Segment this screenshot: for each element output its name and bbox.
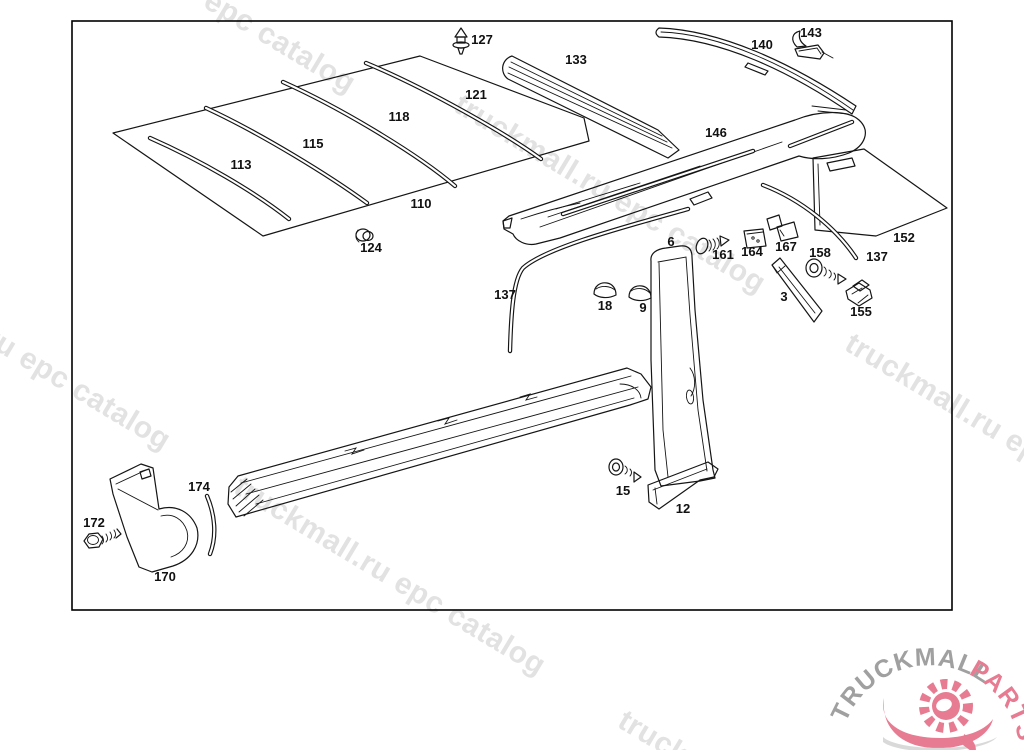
part-label-18: 18 [598, 298, 612, 313]
part-label-113: 113 [231, 157, 252, 172]
part-label-155: 155 [850, 304, 872, 319]
watermark-text: truckmall.ru epc catalog [839, 327, 1024, 539]
part-174-strip [207, 496, 214, 554]
part-label-152: 152 [893, 230, 915, 245]
part-label-137-left: 137 [494, 287, 516, 302]
part-label-6: 6 [667, 234, 674, 249]
part-label-161: 161 [712, 247, 734, 262]
part-label-124: 124 [360, 240, 382, 255]
part-label-133: 133 [565, 52, 587, 67]
part-label-170: 170 [154, 569, 176, 584]
part-167-bracket [767, 215, 798, 241]
part-label-12: 12 [676, 501, 690, 516]
watermark-text: truckmall.ru epc catalog [38, 0, 361, 100]
watermark-layer: truckmall.ru epc catalog truckmall.ru ep… [0, 0, 1024, 750]
part-170-bracket [110, 464, 198, 572]
part-label-146: 146 [705, 125, 727, 140]
part-label-137-right: 137 [866, 249, 888, 264]
part-label-3: 3 [780, 289, 787, 304]
part-label-158: 158 [809, 245, 831, 260]
part-155-clip [846, 280, 872, 306]
logo-gear-icon [883, 684, 997, 750]
part-15-screw [609, 459, 641, 482]
part-label-174: 174 [188, 479, 210, 494]
watermark-text: truckmall.ru epc catalog [228, 470, 551, 682]
part-label-143: 143 [800, 25, 822, 40]
diagram-canvas: truckmall.ru epc catalog truckmall.ru ep… [0, 0, 1024, 750]
part-label-115: 115 [303, 136, 324, 151]
logo-suffix-text: PARTS [965, 655, 1024, 745]
part-label-118: 118 [389, 109, 410, 124]
part-152-pillar-panel [813, 149, 947, 236]
part-label-110: 110 [411, 196, 432, 211]
part-9-cap [629, 286, 651, 301]
part-18-cap [594, 283, 616, 298]
truckmall-parts-logo: TRUCKMALL PARTS [826, 643, 1024, 750]
parts-diagram-page: truckmall.ru epc catalog truckmall.ru ep… [0, 0, 1024, 750]
part-label-15: 15 [616, 483, 630, 498]
part-137-right-molding [763, 122, 856, 258]
part-label-9: 9 [639, 300, 646, 315]
part-label-164: 164 [741, 244, 763, 259]
part-118-bow [283, 82, 455, 186]
part-6-b-pillar [651, 246, 715, 486]
part-label-127: 127 [471, 32, 493, 47]
part-label-167: 167 [775, 239, 797, 254]
part-label-121: 121 [465, 87, 487, 102]
part-158-screw [806, 259, 846, 284]
watermark-text: truckmall.ru epc catalog [0, 245, 177, 457]
part-115-bow [206, 108, 367, 203]
part-172-bolt [84, 529, 121, 548]
part-label-140: 140 [751, 37, 773, 52]
part-label-172: 172 [83, 515, 105, 530]
part-127-clip [453, 28, 469, 54]
part-sill-panel [228, 368, 651, 517]
